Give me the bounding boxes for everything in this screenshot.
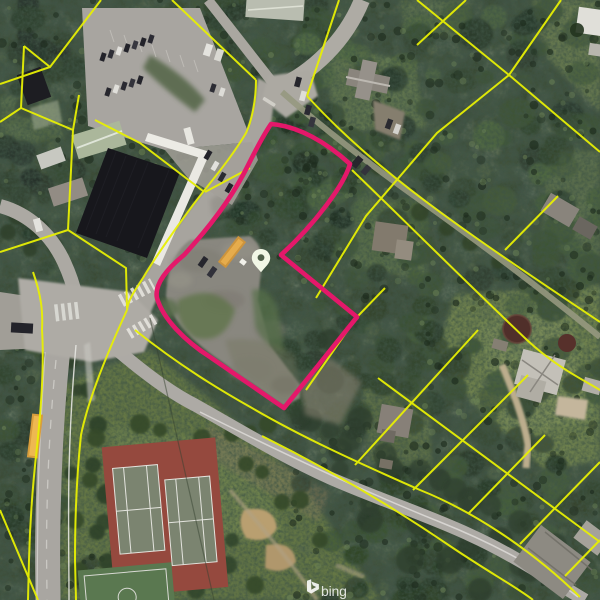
svg-text:bing: bing [321, 583, 347, 599]
